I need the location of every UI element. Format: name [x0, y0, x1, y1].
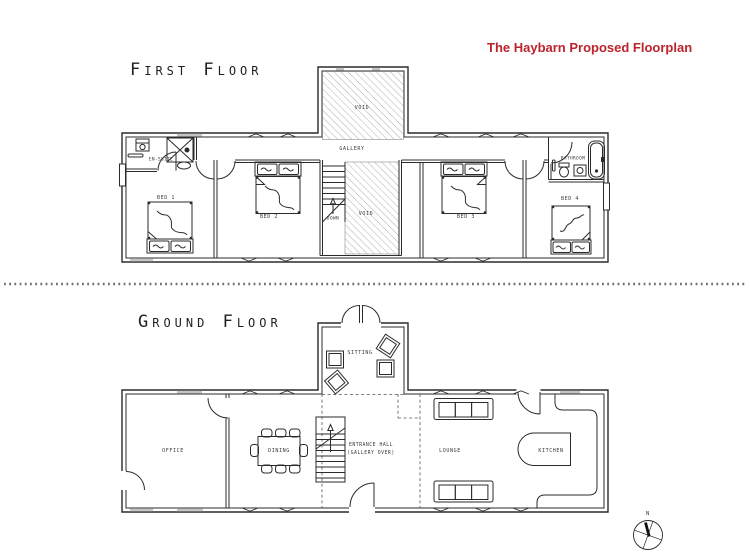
label-stairs-down: Down: [327, 217, 339, 222]
office-door: [208, 398, 228, 418]
stairs-down-icon: [323, 162, 346, 222]
bed-3-icon: [441, 162, 487, 214]
first-floor-plan: [120, 67, 610, 262]
first-floor-title: First Floor: [130, 60, 263, 80]
ground-floor-plan: [120, 305, 609, 514]
label-kitchen: Kitchen: [538, 448, 563, 454]
label-bathroom: Bathroom: [561, 156, 585, 161]
floorplan-page: The Haybarn Proposed Floorplan First Flo…: [0, 0, 750, 558]
label-gallery: Gallery: [339, 146, 364, 152]
stairs-up-icon: [316, 417, 345, 482]
label-void-lower: Void: [359, 211, 373, 217]
label-void-upper: Void: [355, 105, 369, 111]
label-entrance-hall: Entrance Hall (Gallery Over): [347, 442, 394, 458]
label-sitting: Sitting: [347, 350, 372, 356]
document-title: The Haybarn Proposed Floorplan: [487, 40, 692, 55]
label-bed-2: Bed 2: [260, 214, 278, 220]
office-side-door: [126, 472, 145, 491]
label-dining: Dining: [268, 448, 290, 454]
ground-floor-title: Ground Floor: [138, 312, 282, 332]
label-bed-3: Bed 3: [457, 214, 475, 220]
sink-icon: [574, 165, 586, 176]
floorplan-drawing: [0, 0, 750, 558]
toilet-icon: [559, 163, 569, 167]
window-left-wall: [120, 164, 126, 186]
bed3-door: [505, 161, 523, 179]
bed-1-icon: [147, 202, 193, 253]
compass-north-icon: [634, 521, 663, 550]
en-suite-fixtures: [128, 138, 193, 169]
label-compass-north: N: [646, 511, 650, 517]
window-right-wall: [604, 183, 610, 210]
bed2-door: [217, 161, 235, 179]
bed4-door: [526, 161, 544, 179]
double-entry-doors: [342, 305, 380, 323]
label-entrance-hall-line1: Entrance Hall: [347, 442, 394, 450]
label-bed-4: Bed 4: [561, 196, 579, 202]
label-office: Office: [162, 448, 184, 454]
label-entrance-hall-line2: (Gallery Over): [347, 450, 394, 458]
label-bed-1: Bed 1: [157, 195, 175, 201]
entrance-door: [350, 483, 374, 507]
label-en-suite: En-Suite: [149, 157, 173, 162]
void-lower-hatch: [345, 162, 399, 254]
armchair-icons: [325, 334, 400, 394]
bed-4-icon: [551, 206, 591, 254]
label-lounge: Lounge: [439, 448, 461, 454]
bed1-door: [196, 161, 214, 179]
bed-2-icon: [255, 162, 301, 214]
